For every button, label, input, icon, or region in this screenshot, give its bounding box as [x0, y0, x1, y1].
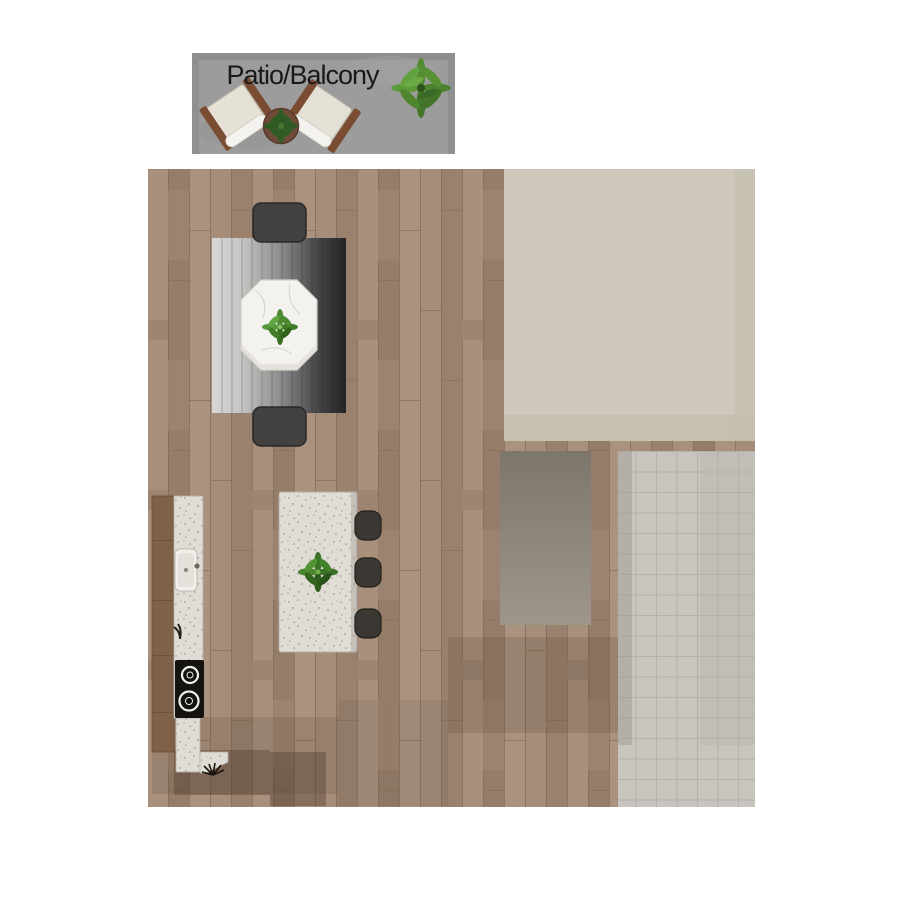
svg-text:Patio/Balcony: Patio/Balcony: [227, 60, 381, 90]
